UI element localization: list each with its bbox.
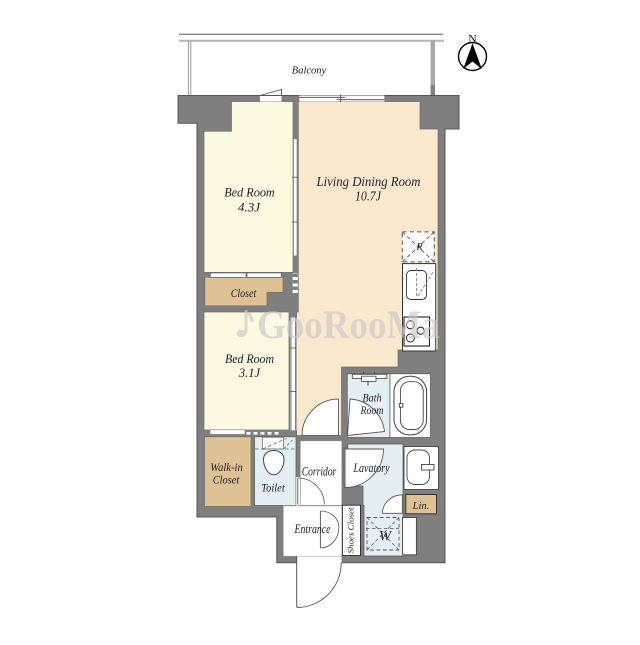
- svg-text:Lavatory: Lavatory: [353, 461, 390, 475]
- svg-text:Toilet: Toilet: [261, 481, 285, 495]
- svg-text:Closet: Closet: [213, 475, 240, 487]
- svg-text:Balcony: Balcony: [292, 66, 327, 77]
- svg-text:Living Dining Room: Living Dining Room: [316, 174, 421, 189]
- svg-text:4.3J: 4.3J: [238, 200, 261, 215]
- svg-text:R: R: [415, 242, 422, 253]
- svg-text:Walk-in: Walk-in: [210, 462, 243, 474]
- svg-text:Closet: Closet: [231, 286, 257, 300]
- svg-text:Room: Room: [360, 405, 384, 417]
- svg-text:Lin.: Lin.: [412, 501, 430, 512]
- svg-text:N: N: [468, 33, 477, 45]
- svg-text:Corridor: Corridor: [302, 465, 337, 479]
- svg-text:Shoes Closet: Shoes Closet: [346, 507, 356, 554]
- svg-text:3.1J: 3.1J: [238, 366, 262, 380]
- svg-text:Bed Room: Bed Room: [224, 185, 275, 200]
- svg-text:10.7J: 10.7J: [355, 188, 382, 203]
- svg-text:W: W: [379, 529, 393, 545]
- svg-text:Bath: Bath: [363, 393, 382, 405]
- svg-text:Bed Room: Bed Room: [225, 352, 274, 366]
- svg-text:GooRooMa: GooRooMa: [257, 302, 440, 347]
- svg-text:Entrance: Entrance: [294, 522, 331, 536]
